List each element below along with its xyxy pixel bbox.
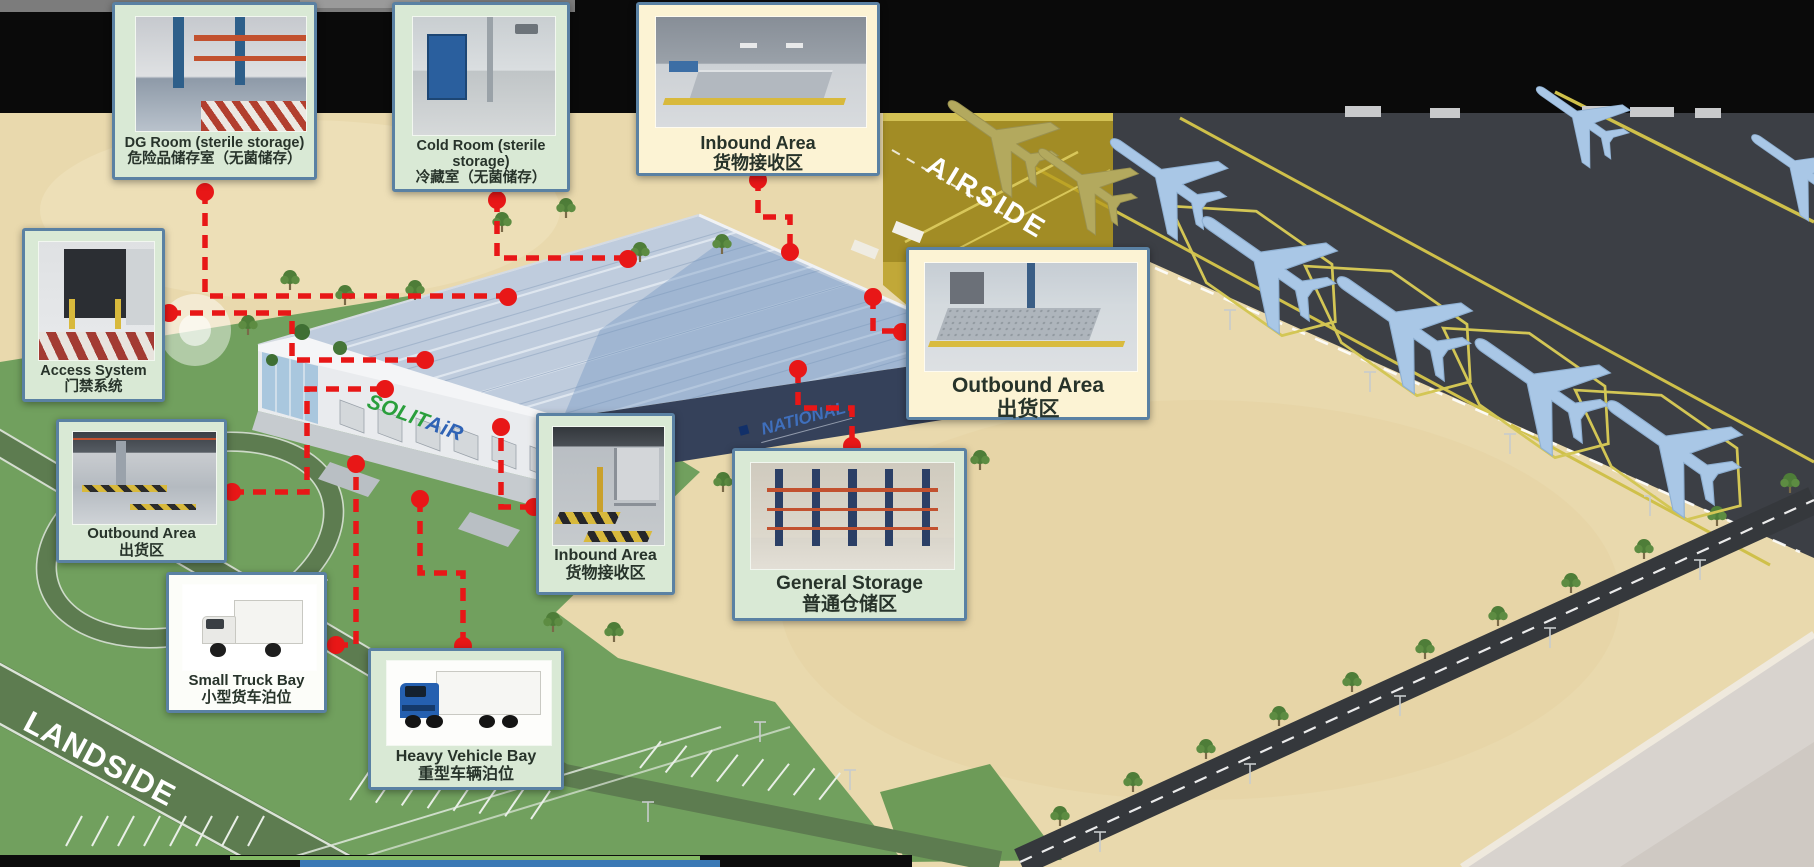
inbound-area-top-title: Inbound Area <box>643 133 873 153</box>
access-system-title: Access System <box>29 363 158 379</box>
connector-small-truck <box>335 465 356 645</box>
outbound-area-right-subtitle: 出货区 <box>913 398 1143 422</box>
dg-room-subtitle: 危险品储存室（无菌储存） <box>119 151 310 167</box>
card-inbound-area-top: Inbound Area货物接收区 <box>636 2 880 176</box>
general-storage-photo <box>751 463 954 569</box>
inbound-area-center-subtitle: 货物接收区 <box>543 565 668 583</box>
card-general-storage: General Storage普通仓储区 <box>732 448 967 621</box>
connector-inbound-center <box>501 428 533 507</box>
card-cold-room: Cold Room (sterile storage)冷藏室（无菌储存） <box>392 2 570 192</box>
small-truck-bay-subtitle: 小型货车泊位 <box>173 690 320 707</box>
card-small-truck-bay: Small Truck Bay小型货车泊位 <box>166 572 327 713</box>
connector-access-system <box>168 313 424 360</box>
connector-dg-room <box>205 191 506 296</box>
general-storage-subtitle: 普通仓储区 <box>739 594 960 615</box>
card-heavy-vehicle-bay: Heavy Vehicle Bay重型车辆泊位 <box>368 648 564 790</box>
heavy-vehicle-bay-title: Heavy Vehicle Bay <box>375 748 557 766</box>
connector-cold-room <box>497 199 626 258</box>
outbound-area-right-title: Outbound Area <box>913 374 1143 398</box>
general-storage-title: General Storage <box>739 573 960 594</box>
cold-room-photo <box>413 17 555 135</box>
card-dg-room: DG Room (sterile storage)危险品储存室（无菌储存） <box>112 2 317 180</box>
access-system-photo <box>39 242 154 360</box>
card-access-system: Access System门禁系统 <box>22 228 165 402</box>
connector-inbound-top <box>758 178 790 250</box>
small-truck-bay-title: Small Truck Bay <box>173 673 320 690</box>
connector-heavy-vehicle <box>420 500 463 645</box>
dg-room-title: DG Room (sterile storage) <box>119 135 310 151</box>
connector-outbound-left <box>231 389 384 492</box>
card-outbound-area-left: Outbound Area出货区 <box>56 419 227 563</box>
small-truck-bay-photo <box>183 585 316 670</box>
outbound-area-left-subtitle: 出货区 <box>63 543 220 560</box>
heavy-vehicle-bay-photo <box>387 661 551 745</box>
inbound-area-top-photo <box>656 17 866 127</box>
outbound-area-right-photo <box>925 263 1137 371</box>
card-inbound-area-center: Inbound Area货物接收区 <box>536 413 675 595</box>
access-system-subtitle: 门禁系统 <box>29 379 158 395</box>
dg-room-photo <box>136 17 306 131</box>
connector-general-storage <box>798 370 852 445</box>
cold-room-title: Cold Room (sterile storage) <box>399 138 563 170</box>
inbound-area-center-photo <box>553 427 664 545</box>
outbound-area-left-title: Outbound Area <box>63 526 220 543</box>
outbound-area-left-photo <box>73 432 216 524</box>
facility-map: AIRSIDE <box>0 0 1814 867</box>
inbound-area-top-subtitle: 货物接收区 <box>643 153 873 173</box>
card-outbound-area-right: Outbound Area出货区 <box>906 247 1150 420</box>
cold-room-subtitle: 冷藏室（无菌储存） <box>399 170 563 186</box>
inbound-area-center-title: Inbound Area <box>543 547 668 565</box>
heavy-vehicle-bay-subtitle: 重型车辆泊位 <box>375 766 557 784</box>
